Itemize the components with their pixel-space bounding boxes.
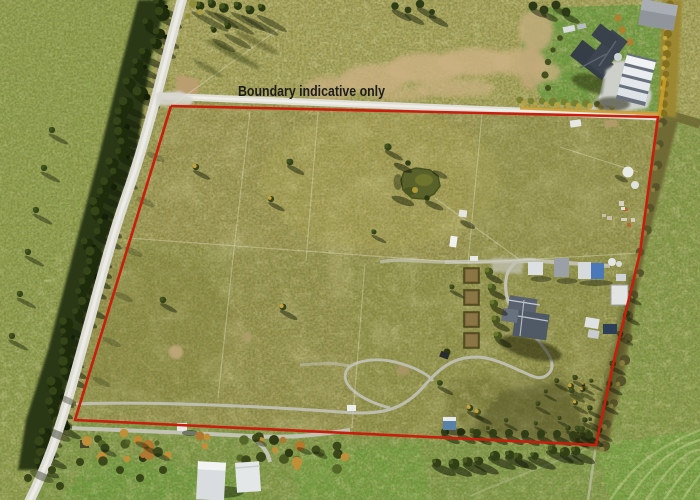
svg-text:Boundary indicative only: Boundary indicative only xyxy=(238,83,386,100)
